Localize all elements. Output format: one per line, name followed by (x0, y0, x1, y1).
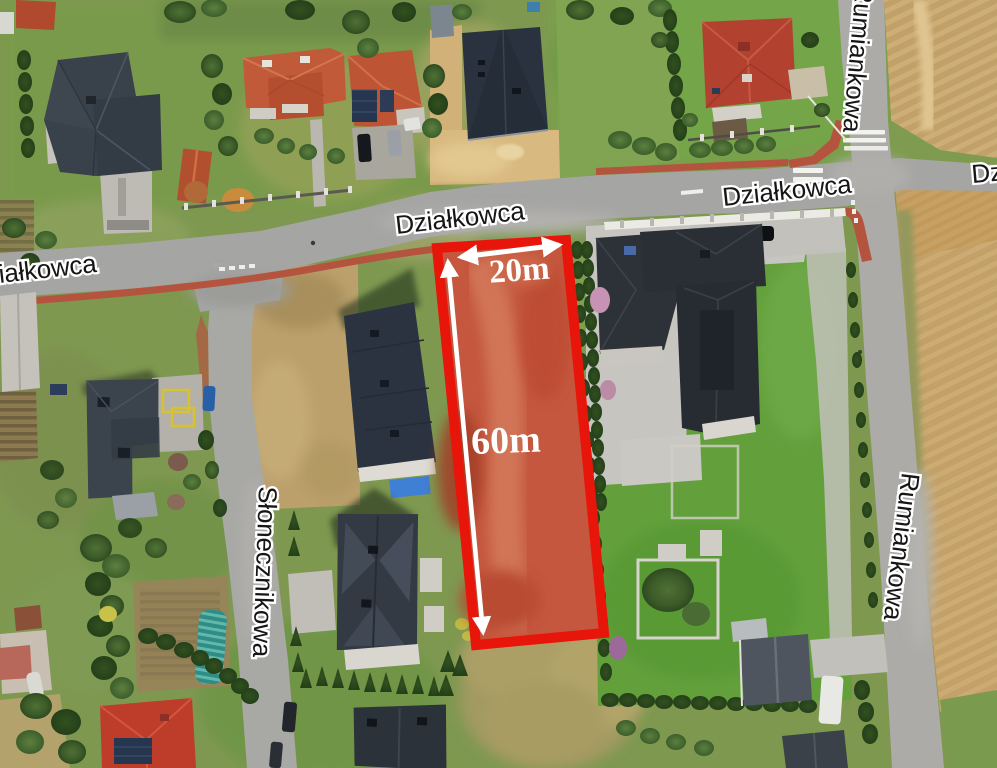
svg-text:60m: 60m (470, 419, 541, 463)
svg-text:Słonecznikowa: Słonecznikowa (247, 486, 283, 659)
svg-text:20m: 20m (488, 251, 551, 291)
